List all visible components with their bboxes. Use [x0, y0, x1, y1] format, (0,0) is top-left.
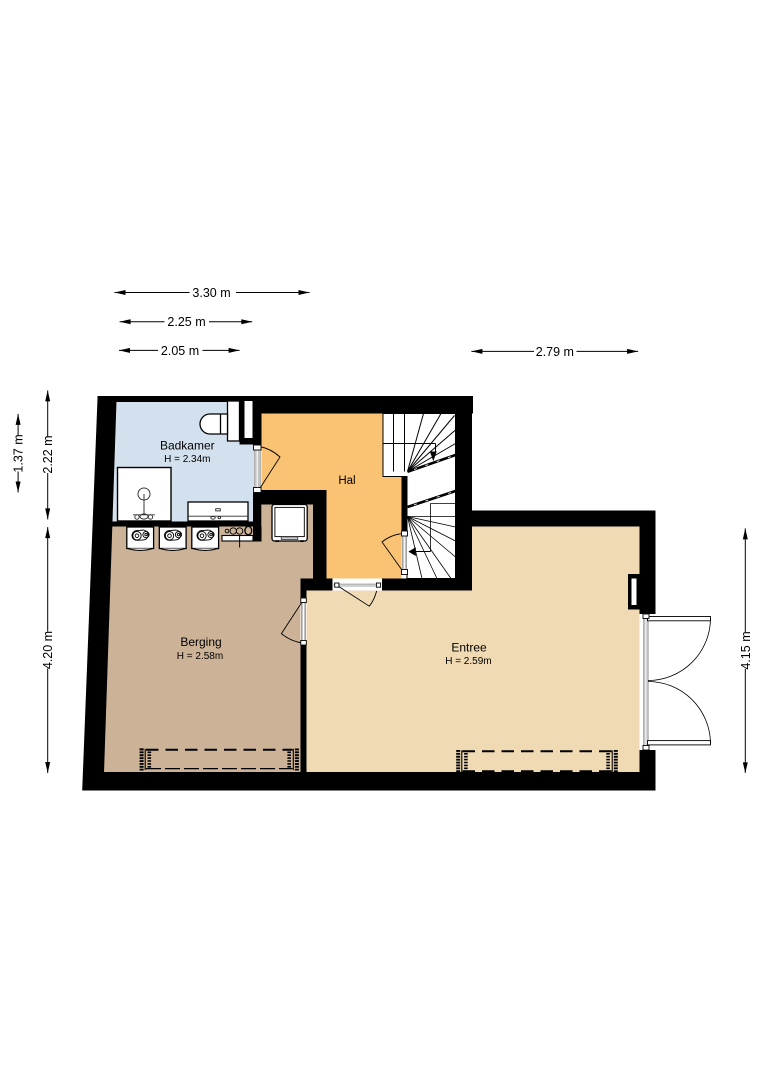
- svg-text:Hal: Hal: [338, 475, 355, 487]
- svg-text:4.15 m: 4.15 m: [739, 631, 753, 669]
- svg-text:H = 2.34m: H = 2.34m: [164, 454, 210, 465]
- svg-text:Badkamer: Badkamer: [160, 439, 215, 453]
- svg-text:2.25 m: 2.25 m: [167, 315, 205, 329]
- svg-text:3.30 m: 3.30 m: [192, 286, 230, 300]
- svg-text:H = 2.58m: H = 2.58m: [177, 651, 223, 662]
- svg-text:2.05 m: 2.05 m: [161, 344, 199, 358]
- svg-text:H = 2.59m: H = 2.59m: [445, 656, 491, 667]
- svg-text:Berging: Berging: [180, 635, 221, 649]
- svg-text:Entree: Entree: [451, 641, 487, 655]
- svg-text:1.37 m: 1.37 m: [12, 434, 26, 472]
- svg-text:4.20 m: 4.20 m: [41, 631, 55, 669]
- svg-text:2.22 m: 2.22 m: [41, 435, 55, 473]
- svg-text:2.79 m: 2.79 m: [536, 345, 574, 359]
